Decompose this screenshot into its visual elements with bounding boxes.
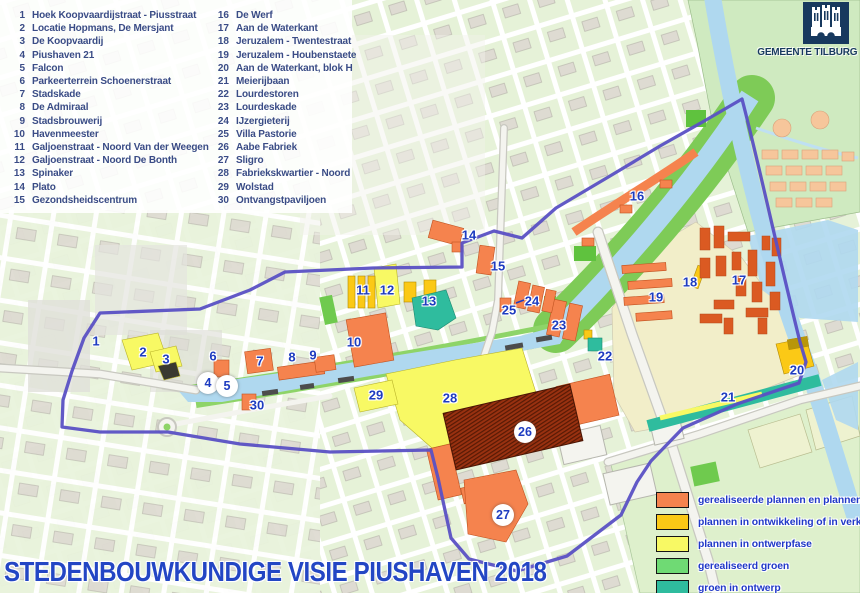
map-marker: 6 — [209, 349, 216, 364]
legend-label: groen in ontwerp — [698, 583, 781, 593]
project-number: 27 — [212, 154, 229, 167]
project-number: 7 — [8, 88, 25, 101]
project-name: De Werf — [236, 9, 273, 22]
project-list: 1 Hoek Koopvaardijstraat - Piusstraat 2 … — [0, 0, 352, 213]
map-marker: 16 — [630, 189, 644, 204]
project-number: 5 — [8, 62, 25, 75]
project-number: 29 — [212, 181, 229, 194]
project-row: 10 Havenmeester — [8, 128, 212, 141]
map-marker: 8 — [288, 350, 295, 365]
project-row: 11 Galjoenstraat - Noord Van der Weegen — [8, 141, 212, 154]
map-marker: 13 — [422, 294, 436, 309]
project-name: De Admiraal — [32, 101, 88, 114]
project-number: 12 — [8, 154, 25, 167]
project-number: 3 — [8, 35, 25, 48]
map-marker: 2 — [139, 345, 146, 360]
project-name: Aan de Waterkant, blok H — [236, 62, 353, 75]
project-row: 30 Ontvangstpaviljoen — [212, 194, 356, 207]
map-marker: 23 — [552, 318, 566, 333]
legend-item: gerealiseerd groen — [656, 555, 860, 577]
project-name: Aabe Fabriek — [236, 141, 297, 154]
project-row: 2 Locatie Hopmans, De Mersjant — [8, 22, 212, 35]
project-name: Piushaven 21 — [32, 49, 94, 62]
project-number: 10 — [8, 128, 25, 141]
project-row: 6 Parkeerterrein Schoenerstraat — [8, 75, 212, 88]
project-name: Meierijbaan — [236, 75, 289, 88]
project-row: 16 De Werf — [212, 9, 356, 22]
project-number: 17 — [212, 22, 229, 35]
project-name: Sligro — [236, 154, 263, 167]
legend-swatch — [656, 580, 689, 593]
project-name: Lourdestoren — [236, 88, 299, 101]
project-row: 22 Lourdestoren — [212, 88, 356, 101]
project-name: Plato — [32, 181, 56, 194]
legend-item: plannen in ontwikkeling of in verkoop — [656, 511, 860, 533]
project-row: 23 Lourdeskade — [212, 101, 356, 114]
project-number: 22 — [212, 88, 229, 101]
project-name: Hoek Koopvaardijstraat - Piusstraat — [32, 9, 196, 22]
legend-item: groen in ontwerp — [656, 577, 860, 593]
map-canvas: 1234567891011121314151617181920212223242… — [0, 0, 860, 593]
project-row: 9 Stadsbrouwerij — [8, 115, 212, 128]
project-number: 15 — [8, 194, 25, 207]
map-marker: 5 — [216, 375, 238, 397]
project-number: 14 — [8, 181, 25, 194]
project-name: Lourdeskade — [236, 101, 297, 114]
project-number: 11 — [8, 141, 25, 154]
project-name: Jeruzalem - Twentestraat — [236, 35, 351, 48]
legend-label: gerealiseerde plannen en plannen in aanb… — [698, 495, 860, 506]
project-row: 5 Falcon — [8, 62, 212, 75]
tilburg-castle-icon — [803, 2, 849, 44]
map-legend: gerealiseerde plannen en plannen in aanb… — [656, 489, 860, 593]
map-marker: 22 — [598, 349, 612, 364]
project-number: 4 — [8, 49, 25, 62]
project-row: 26 Aabe Fabriek — [212, 141, 356, 154]
map-marker: 7 — [256, 354, 263, 369]
project-row: 19 Jeruzalem - Houbenstaete — [212, 49, 356, 62]
project-number: 24 — [212, 115, 229, 128]
project-name: Wolstad — [236, 181, 274, 194]
logo-text: GEMEENTE TILBURG — [757, 46, 857, 58]
map-marker: 18 — [683, 275, 697, 290]
legend-label: plannen in ontwerpfase — [698, 539, 812, 550]
map-marker: 9 — [309, 348, 316, 363]
project-number: 21 — [212, 75, 229, 88]
project-name: Aan de Waterkant — [236, 22, 318, 35]
map-marker: 1 — [92, 334, 99, 349]
project-row: 4 Piushaven 21 — [8, 49, 212, 62]
map-marker: 15 — [491, 259, 505, 274]
project-name: Villa Pastorie — [236, 128, 297, 141]
map-marker: 29 — [369, 388, 383, 403]
project-number: 13 — [8, 167, 25, 180]
gemeente-tilburg-logo: GEMEENTE TILBURG — [747, 2, 857, 58]
project-number: 19 — [212, 49, 229, 62]
legend-label: plannen in ontwikkeling of in verkoop — [698, 517, 860, 528]
project-row: 24 IJzergieterij — [212, 115, 356, 128]
project-number: 9 — [8, 115, 25, 128]
project-number: 2 — [8, 22, 25, 35]
project-row: 21 Meierijbaan — [212, 75, 356, 88]
project-number: 16 — [212, 9, 229, 22]
legend-swatch — [656, 536, 689, 552]
project-number: 18 — [212, 35, 229, 48]
project-row: 15 Gezondsheidscentrum — [8, 194, 212, 207]
map-marker: 30 — [250, 398, 264, 413]
project-name: Fabriekskwartier - Noord — [236, 167, 350, 180]
map-marker: 24 — [525, 294, 539, 309]
legend-swatch — [656, 558, 689, 574]
project-name: Falcon — [32, 62, 63, 75]
project-row: 8 De Admiraal — [8, 101, 212, 114]
project-number: 28 — [212, 167, 229, 180]
map-marker: 19 — [649, 290, 663, 305]
map-marker: 21 — [721, 390, 735, 405]
project-row: 28 Fabriekskwartier - Noord — [212, 167, 356, 180]
legend-label: gerealiseerd groen — [698, 561, 789, 572]
project-name: Jeruzalem - Houbenstaete — [236, 49, 356, 62]
project-name: Stadskade — [32, 88, 81, 101]
map-marker: 10 — [347, 335, 361, 350]
project-number: 20 — [212, 62, 229, 75]
project-number: 1 — [8, 9, 25, 22]
project-row: 3 De Koopvaardij — [8, 35, 212, 48]
project-row: 20 Aan de Waterkant, blok H — [212, 62, 356, 75]
project-number: 25 — [212, 128, 229, 141]
project-name: Ontvangstpaviljoen — [236, 194, 326, 207]
project-name: Spinaker — [32, 167, 73, 180]
project-number: 6 — [8, 75, 25, 88]
legend-item: gerealiseerde plannen en plannen in aanb… — [656, 489, 860, 511]
project-row: 13 Spinaker — [8, 167, 212, 180]
map-marker: 25 — [502, 303, 516, 318]
legend-swatch — [656, 492, 689, 508]
project-name: Galjoenstraat - Noord De Bonth — [32, 154, 177, 167]
project-row: 27 Sligro — [212, 154, 356, 167]
map-marker: 11 — [356, 283, 370, 298]
project-row: 18 Jeruzalem - Twentestraat — [212, 35, 356, 48]
project-name: Locatie Hopmans, De Mersjant — [32, 22, 173, 35]
legend-item: plannen in ontwerpfase — [656, 533, 860, 555]
project-row: 7 Stadskade — [8, 88, 212, 101]
project-number: 30 — [212, 194, 229, 207]
project-name: De Koopvaardij — [32, 35, 103, 48]
project-row: 14 Plato — [8, 181, 212, 194]
project-number: 23 — [212, 101, 229, 114]
project-row: 17 Aan de Waterkant — [212, 22, 356, 35]
map-marker: 17 — [732, 273, 746, 288]
project-name: Havenmeester — [32, 128, 99, 141]
page-title: STEDENBOUWKUNDIGE VISIE PIUSHAVEN 2018 — [4, 556, 547, 588]
project-name: Gezondsheidscentrum — [32, 194, 137, 207]
project-name: Stadsbrouwerij — [32, 115, 102, 128]
map-marker: 20 — [790, 363, 804, 378]
map-marker: 3 — [162, 352, 169, 367]
map-marker: 28 — [443, 391, 457, 406]
project-row: 29 Wolstad — [212, 181, 356, 194]
map-marker: 12 — [380, 283, 394, 298]
project-name: IJzergieterij — [236, 115, 290, 128]
project-row: 12 Galjoenstraat - Noord De Bonth — [8, 154, 212, 167]
project-number: 26 — [212, 141, 229, 154]
map-marker: 27 — [492, 504, 514, 526]
project-row: 1 Hoek Koopvaardijstraat - Piusstraat — [8, 9, 212, 22]
project-name: Parkeerterrein Schoenerstraat — [32, 75, 171, 88]
map-marker: 14 — [462, 228, 476, 243]
legend-swatch — [656, 514, 689, 530]
project-number: 8 — [8, 101, 25, 114]
map-marker: 26 — [514, 421, 536, 443]
project-row: 25 Villa Pastorie — [212, 128, 356, 141]
project-name: Galjoenstraat - Noord Van der Weegen — [32, 141, 209, 154]
